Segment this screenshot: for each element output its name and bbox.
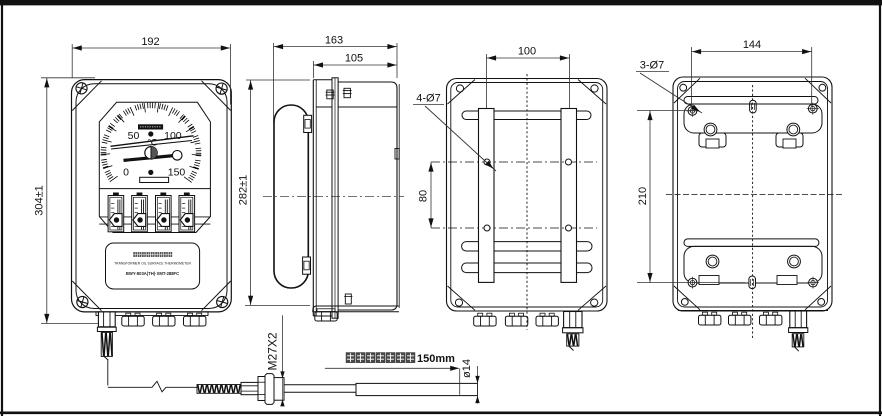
svg-text:192: 192 — [141, 36, 159, 48]
svg-text:3-Ø7: 3-Ø7 — [640, 60, 664, 72]
svg-text:4-Ø7: 4-Ø7 — [416, 93, 440, 105]
svg-text:TRANSFORMER OIL SURFACE THERMO: TRANSFORMER OIL SURFACE THERMOMETER — [114, 262, 191, 266]
svg-text:144: 144 — [743, 39, 761, 51]
svg-text:282±1: 282±1 — [237, 175, 249, 206]
svg-text:150mm: 150mm — [417, 353, 455, 365]
svg-text:M27X2: M27X2 — [266, 332, 280, 370]
svg-text:BWY-803A(TH)·XMT-288FC: BWY-803A(TH)·XMT-288FC — [126, 271, 179, 276]
svg-text:ø14: ø14 — [461, 359, 473, 378]
svg-text:210: 210 — [637, 187, 649, 205]
svg-text:163: 163 — [325, 35, 343, 47]
svg-text:0: 0 — [123, 167, 129, 179]
svg-text:80: 80 — [418, 190, 430, 202]
svg-text:105: 105 — [345, 53, 363, 65]
svg-text:℃: ℃ — [147, 138, 157, 148]
svg-text:304±1: 304±1 — [34, 185, 46, 216]
svg-text:100: 100 — [164, 130, 182, 142]
svg-text:100: 100 — [518, 46, 536, 58]
svg-text:150: 150 — [168, 167, 186, 179]
svg-text:50: 50 — [128, 130, 140, 142]
